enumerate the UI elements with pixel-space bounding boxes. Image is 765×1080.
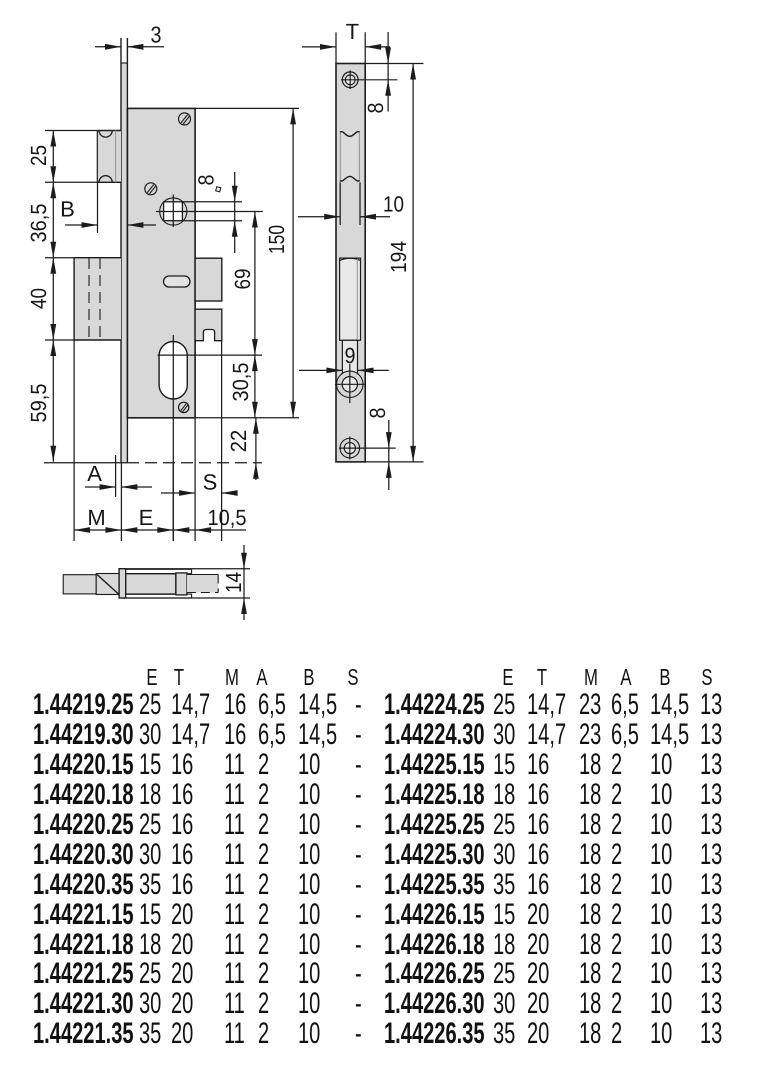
svg-text:M: M — [87, 505, 105, 530]
svg-text:8: 8 — [194, 175, 219, 186]
svg-text:E: E — [139, 505, 154, 530]
svg-text:A: A — [87, 461, 102, 486]
svg-text:S: S — [203, 470, 218, 495]
svg-text:3: 3 — [151, 21, 162, 47]
svg-text:14: 14 — [221, 572, 246, 593]
svg-text:8: 8 — [365, 408, 390, 419]
svg-text:36,5: 36,5 — [26, 204, 51, 243]
svg-text:22: 22 — [226, 430, 251, 453]
svg-text:10: 10 — [383, 192, 404, 217]
svg-text:B: B — [60, 197, 75, 222]
svg-text:59,5: 59,5 — [26, 384, 51, 423]
svg-text:69: 69 — [230, 269, 255, 290]
svg-text:194: 194 — [386, 241, 411, 273]
svg-text:10,5: 10,5 — [208, 505, 247, 530]
svg-text:T: T — [346, 19, 359, 44]
svg-text:40: 40 — [26, 288, 51, 309]
svg-text:25: 25 — [26, 145, 51, 166]
svg-text:150: 150 — [264, 225, 289, 254]
svg-text:30,5: 30,5 — [228, 363, 253, 402]
svg-text:8: 8 — [363, 103, 388, 114]
